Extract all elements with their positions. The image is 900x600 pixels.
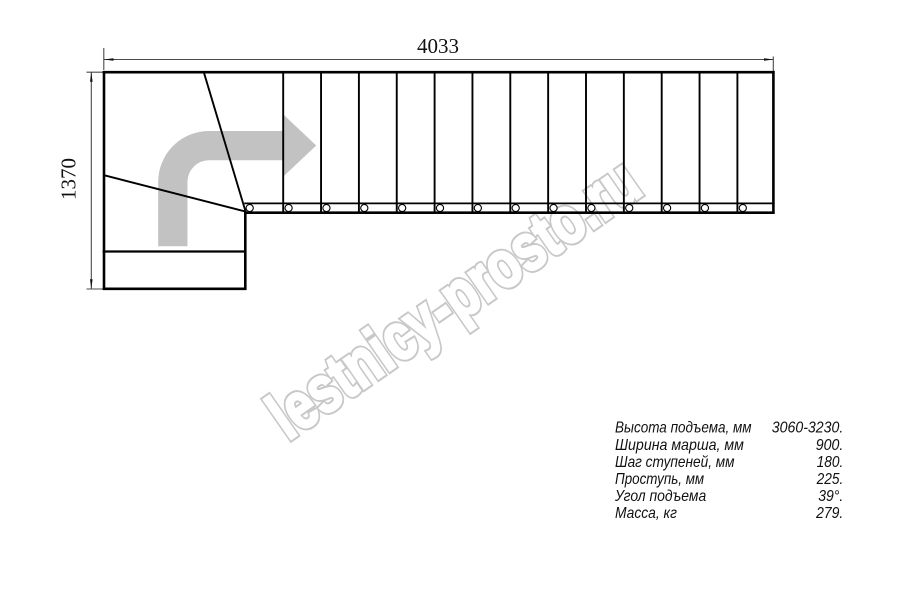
svg-text:225.: 225. xyxy=(816,471,844,488)
svg-text:180.: 180. xyxy=(817,454,844,471)
svg-text:1370: 1370 xyxy=(57,158,81,200)
svg-text:Шаг ступеней, мм: Шаг ступеней, мм xyxy=(615,454,735,471)
svg-text:Масса, кг: Масса, кг xyxy=(615,505,677,522)
svg-text:lestnicy-prosto.ru: lestnicy-prosto.ru xyxy=(254,143,654,452)
svg-text:900.: 900. xyxy=(816,437,844,454)
svg-text:39°.: 39°. xyxy=(818,488,843,505)
svg-text:4033: 4033 xyxy=(417,34,459,58)
svg-text:Проступь, мм: Проступь, мм xyxy=(615,471,704,488)
svg-text:Угол подъема: Угол подъема xyxy=(614,488,706,505)
svg-text:3060-3230.: 3060-3230. xyxy=(772,420,844,437)
svg-text:Высота подъема, мм: Высота подъема, мм xyxy=(615,420,752,437)
svg-text:Ширина марша, мм: Ширина марша, мм xyxy=(615,437,744,454)
svg-text:279.: 279. xyxy=(815,505,843,522)
